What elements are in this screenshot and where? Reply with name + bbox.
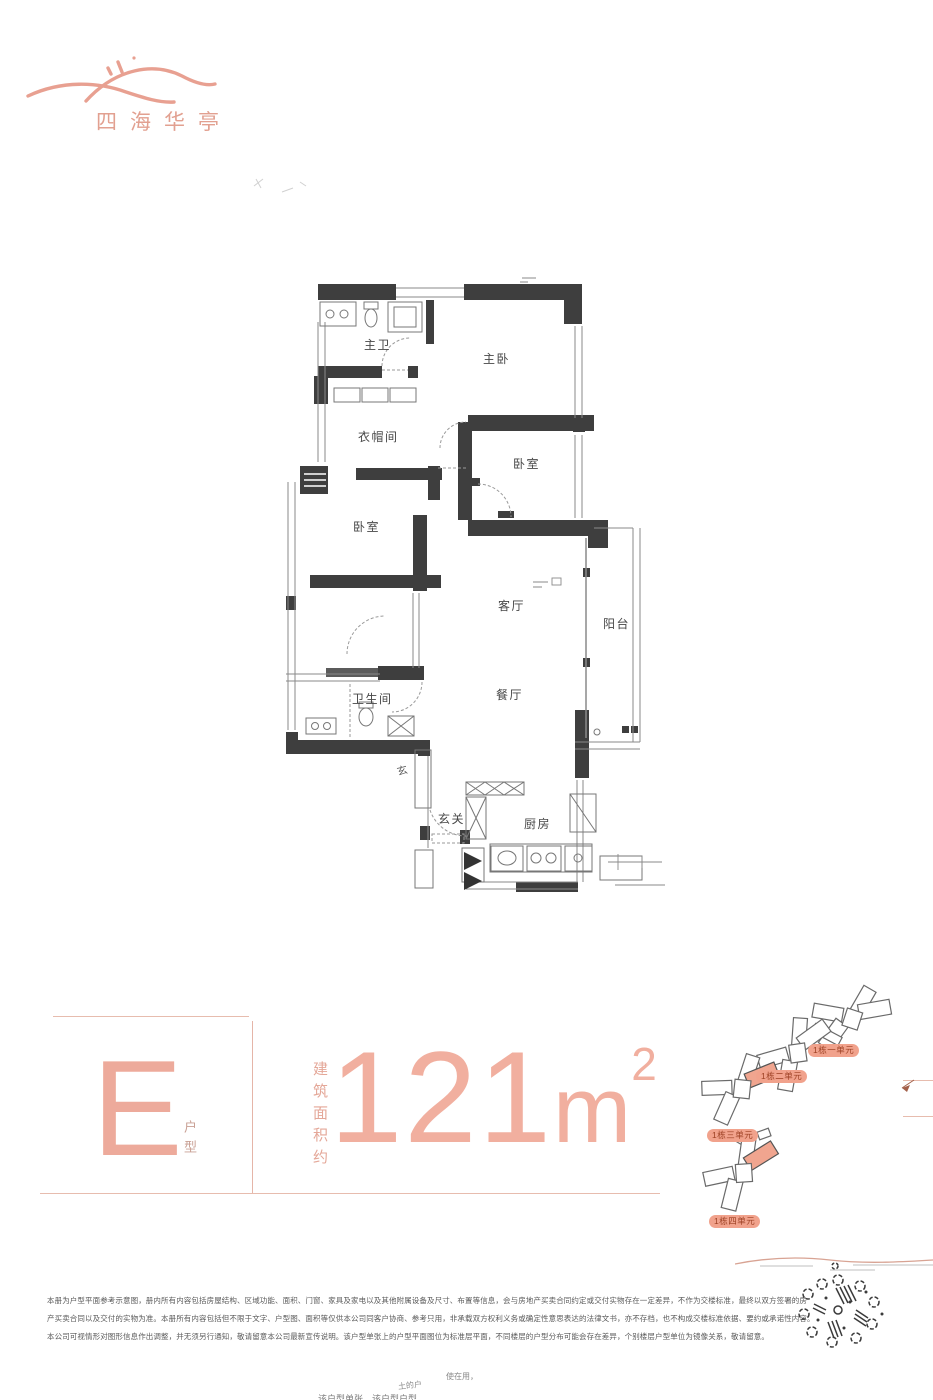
unit-suffix: 户型	[180, 1120, 199, 1160]
print-artifact-marks	[248, 170, 318, 200]
tree-plan-icon	[780, 1262, 895, 1357]
brand-name: 四海华亭	[96, 106, 232, 136]
site-label-unit-2: 1栋二单元	[756, 1070, 807, 1083]
room-label-kitchen: 厨房	[524, 815, 551, 832]
area-label: 建筑面积约	[309, 1061, 330, 1171]
floor-plan-drawing	[270, 270, 670, 930]
windows	[286, 288, 640, 889]
disclaimer-line: 产买卖合同以及交付的实物为准。本册所有内容包括但不限于文字、户型图、面积等仅供本…	[47, 1310, 773, 1328]
room-label-living: 客厅	[498, 597, 525, 614]
floor-plan: 主卫 主卧 衣帽间 卧室 卧室 客厅 阳台 餐厅 卫生间 玄 玄关 厨房	[270, 270, 670, 930]
area-unit: m	[553, 1057, 631, 1162]
wardrobe-icon	[362, 388, 388, 402]
panel-line-top	[53, 1016, 249, 1017]
drain-icon	[594, 729, 600, 735]
building-unit-4	[701, 1135, 783, 1213]
sink-counter-icon	[306, 718, 336, 734]
room-label-balcony: 阳台	[603, 615, 630, 632]
toilet-icon	[365, 309, 377, 327]
site-label-unit-4: 1栋四单元	[709, 1215, 760, 1228]
footer-fragment: 使在用，	[446, 1371, 478, 1382]
walls	[286, 284, 638, 892]
wardrobe-icon	[334, 388, 360, 402]
door-swings	[347, 338, 511, 843]
brochure-page: 四海华亭	[0, 0, 933, 1400]
disclaimer-line: 本册为户型平面参考示意图，册内所有内容包括房屋结构、区域功能、面积、门窗、家具及…	[47, 1292, 773, 1310]
kitchen-sink-icon	[491, 846, 523, 871]
area-figure: 121m2	[330, 1032, 657, 1162]
panel-line-bottom	[40, 1193, 660, 1194]
disclaimer-block: 本册为户型平面参考示意图，册内所有内容包括房屋结构、区域功能、面积、门窗、家具及…	[47, 1292, 773, 1346]
panel-divider	[252, 1021, 253, 1193]
unit-letter: E	[92, 1040, 183, 1176]
toilet-icon	[359, 708, 373, 726]
area-value: 121	[330, 1024, 553, 1170]
wardrobe-icon	[390, 388, 416, 402]
site-label-unit-3: 1栋三单元	[707, 1129, 758, 1142]
room-label-foyer: 玄关	[438, 810, 465, 827]
pantry-arrows-icon	[464, 852, 482, 890]
footer-fragment: 土的户	[397, 1379, 422, 1392]
room-label-cloakroom: 衣帽间	[358, 428, 399, 445]
site-map	[680, 980, 933, 1240]
site-label-unit-1: 1栋一单元	[808, 1044, 859, 1057]
room-label-bed-left: 卧室	[353, 518, 380, 535]
pillar-icon	[415, 750, 431, 808]
room-label-master-bath: 主卫	[364, 336, 391, 353]
fixtures	[306, 302, 642, 888]
service-step-icon	[600, 856, 642, 880]
room-label-master-bed: 主卧	[483, 350, 510, 367]
area-exponent: 2	[631, 1038, 657, 1090]
disclaimer-line: 本公司可视情形对图形信息作出调整，并无须另行通知，敬请留意本公司最新宣传说明。该…	[47, 1328, 773, 1346]
entry-step-icon	[415, 850, 433, 888]
room-label-bath: 卫生间	[352, 690, 393, 707]
room-label-bed-right: 卧室	[513, 455, 540, 472]
toilet-tank-icon	[364, 302, 378, 309]
footer-fragment: 该户型单张 该户型户型	[318, 1392, 417, 1400]
room-label-dining: 餐厅	[496, 686, 523, 703]
direction-arrow-icon	[902, 1080, 914, 1092]
